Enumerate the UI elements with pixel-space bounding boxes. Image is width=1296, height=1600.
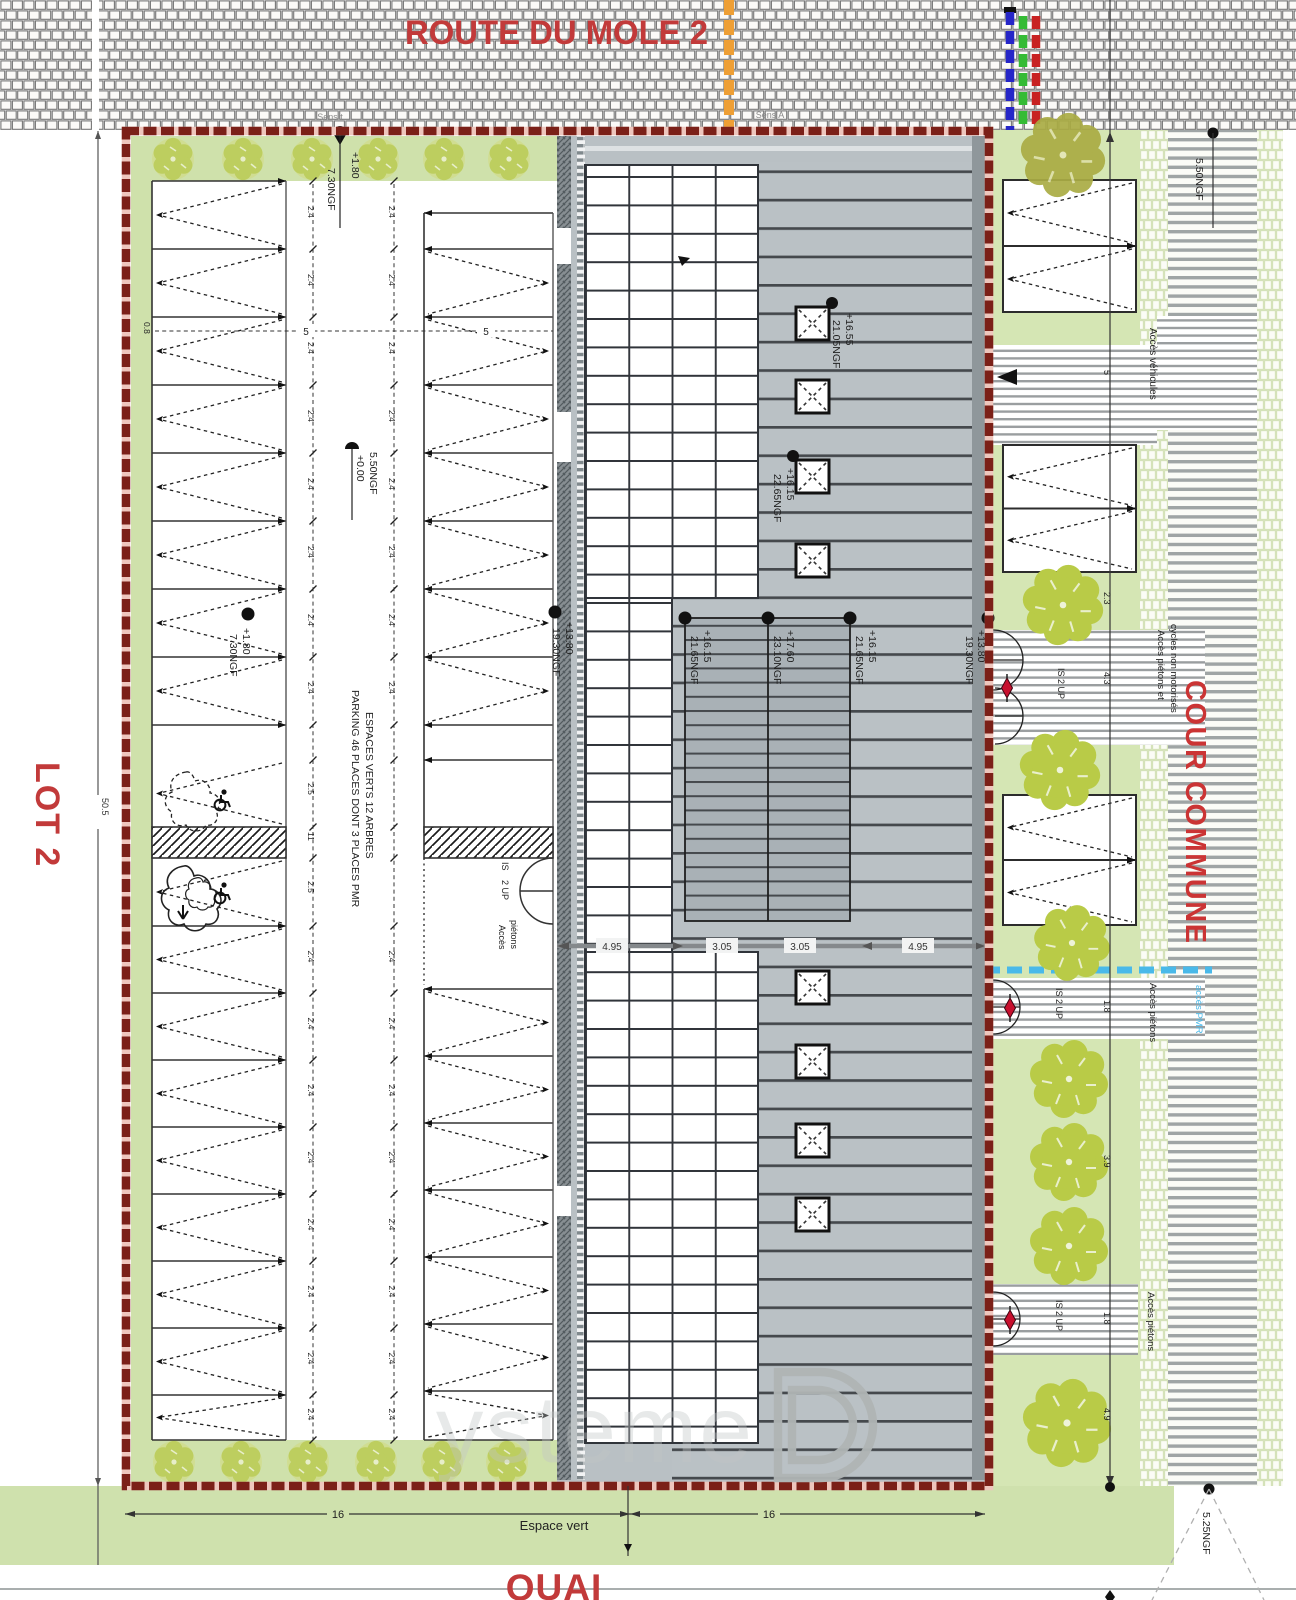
svg-text:1.8: 1.8 — [1102, 1312, 1112, 1325]
svg-text:ysteme: ysteme — [436, 1377, 754, 1483]
svg-text:2.3: 2.3 — [1102, 592, 1112, 605]
svg-text:+0.00: +0.00 — [354, 455, 366, 482]
svg-text:11: 11 — [306, 832, 316, 841]
svg-text:Accès piétons: Accès piétons — [1147, 983, 1158, 1042]
svg-text:3.05: 3.05 — [712, 942, 732, 953]
svg-text:+1.80: +1.80 — [240, 628, 252, 655]
svg-text:21.05NGF: 21.05NGF — [830, 320, 842, 368]
svg-text:PARKING 46 PLACES DONT 3 PLACE: PARKING 46 PLACES DONT 3 PLACES PMR — [349, 690, 361, 908]
svg-text:Espace vert: Espace vert — [520, 1518, 589, 1533]
svg-text:+16.15: +16.15 — [784, 468, 796, 501]
svg-text:2.4: 2.4 — [387, 614, 397, 626]
svg-text:ROUTE DU MOLE 2: ROUTE DU MOLE 2 — [405, 14, 708, 52]
svg-text:5: 5 — [303, 327, 309, 338]
svg-text:IS: IS — [500, 862, 510, 871]
svg-text:2 UP: 2 UP — [500, 880, 510, 900]
svg-text:5: 5 — [1102, 370, 1112, 375]
svg-text:+17.60: +17.60 — [784, 630, 796, 663]
svg-text:2.4: 2.4 — [306, 1353, 316, 1365]
svg-text:2.4: 2.4 — [387, 206, 397, 218]
svg-text:19.30NGF: 19.30NGF — [963, 636, 975, 684]
svg-text:LOT 2: LOT 2 — [28, 762, 66, 868]
svg-text:2.4: 2.4 — [306, 1085, 316, 1097]
svg-text:2.4: 2.4 — [387, 1286, 397, 1298]
svg-text:2.4: 2.4 — [306, 546, 316, 558]
svg-text:0.8: 0.8 — [142, 322, 152, 334]
svg-text:21.65NGF: 21.65NGF — [688, 636, 700, 684]
svg-text:2.4: 2.4 — [387, 682, 397, 694]
svg-text:QUAI: QUAI — [506, 1567, 603, 1600]
svg-text:Accès piétons et: Accès piétons et — [1155, 630, 1166, 700]
svg-text:2.4: 2.4 — [306, 206, 316, 218]
svg-text:IS 2 UP: IS 2 UP — [1056, 668, 1066, 699]
svg-text:2.4: 2.4 — [306, 342, 316, 354]
svg-text:2.4: 2.4 — [306, 1018, 316, 1030]
svg-text:5: 5 — [483, 327, 489, 338]
svg-text:2.4: 2.4 — [306, 274, 316, 286]
svg-text:IS 2 UP: IS 2 UP — [1054, 1300, 1064, 1331]
svg-text:2.4: 2.4 — [387, 274, 397, 286]
svg-text:3.9: 3.9 — [1102, 1155, 1112, 1168]
svg-text:+13.80: +13.80 — [563, 622, 575, 655]
svg-text:Accès piétons: Accès piétons — [1145, 1292, 1156, 1351]
svg-text:19.30NGF: 19.30NGF — [550, 628, 562, 676]
svg-text:5.25NGF: 5.25NGF — [1200, 1512, 1212, 1555]
svg-text:IS 2 UP: IS 2 UP — [1054, 988, 1064, 1019]
svg-text:2.4: 2.4 — [306, 1152, 316, 1164]
svg-text:Sens A: Sens A — [756, 110, 785, 120]
svg-text:2.4: 2.4 — [306, 478, 316, 490]
svg-text:2.4: 2.4 — [387, 1409, 397, 1421]
svg-text:50.5: 50.5 — [100, 798, 110, 816]
svg-text:COUR COMMUNE: COUR COMMUNE — [1179, 680, 1211, 945]
svg-text:Accès véhicules: Accès véhicules — [1147, 328, 1158, 400]
svg-text:1.8: 1.8 — [1102, 1000, 1112, 1013]
svg-text:piétons: piétons — [509, 920, 519, 950]
svg-text:2.4: 2.4 — [387, 951, 397, 963]
svg-text:4.95: 4.95 — [908, 942, 928, 953]
svg-text:4.9: 4.9 — [1102, 1408, 1112, 1421]
svg-text:accès PMR: accès PMR — [1193, 985, 1204, 1034]
svg-text:2.4: 2.4 — [387, 1018, 397, 1030]
svg-text:22.65NGF: 22.65NGF — [771, 474, 783, 522]
svg-text:2.4: 2.4 — [387, 410, 397, 422]
svg-text:+16.15: +16.15 — [866, 630, 878, 663]
svg-text:2.4: 2.4 — [387, 478, 397, 490]
svg-text:2.4: 2.4 — [306, 614, 316, 626]
svg-text:Sens t: Sens t — [317, 112, 343, 122]
svg-text:ESPACES VERTS 12 ARBRES: ESPACES VERTS 12 ARBRES — [363, 712, 375, 859]
svg-text:cycles non motorisés: cycles non motorisés — [1168, 624, 1179, 713]
svg-text:3.05: 3.05 — [790, 942, 810, 953]
svg-text:2.4: 2.4 — [387, 1152, 397, 1164]
svg-text:2.4: 2.4 — [387, 546, 397, 558]
svg-text:2.4: 2.4 — [387, 1085, 397, 1097]
svg-text:+16.55: +16.55 — [843, 313, 855, 346]
svg-text:2.4: 2.4 — [306, 682, 316, 694]
svg-text:2.4: 2.4 — [306, 410, 316, 422]
svg-text:2.4: 2.4 — [387, 1219, 397, 1231]
svg-text:5.50NGF: 5.50NGF — [367, 452, 379, 495]
svg-text:2.4: 2.4 — [306, 1409, 316, 1421]
svg-text:5.50NGF: 5.50NGF — [1193, 158, 1205, 201]
svg-text:7.30NGF: 7.30NGF — [325, 168, 337, 211]
svg-text:+1.80: +1.80 — [349, 152, 361, 179]
svg-text:4.3: 4.3 — [1102, 672, 1112, 685]
svg-text:4.95: 4.95 — [602, 942, 622, 953]
svg-text:2.4: 2.4 — [387, 1353, 397, 1365]
svg-text:2.5: 2.5 — [306, 881, 316, 893]
svg-text:+16.15: +16.15 — [701, 630, 713, 663]
svg-text:2.4: 2.4 — [387, 342, 397, 354]
svg-text:16: 16 — [763, 1509, 775, 1521]
svg-text:2.4: 2.4 — [306, 1219, 316, 1231]
svg-text:7.30NGF: 7.30NGF — [227, 634, 239, 677]
svg-text:21.65NGF: 21.65NGF — [853, 636, 865, 684]
svg-text:2.5: 2.5 — [306, 783, 316, 795]
svg-text:Accès: Accès — [497, 925, 507, 950]
svg-text:2.4: 2.4 — [306, 951, 316, 963]
svg-text:16: 16 — [332, 1509, 344, 1521]
svg-text:23.10NGF: 23.10NGF — [771, 636, 783, 684]
svg-text:2.4: 2.4 — [306, 1286, 316, 1298]
